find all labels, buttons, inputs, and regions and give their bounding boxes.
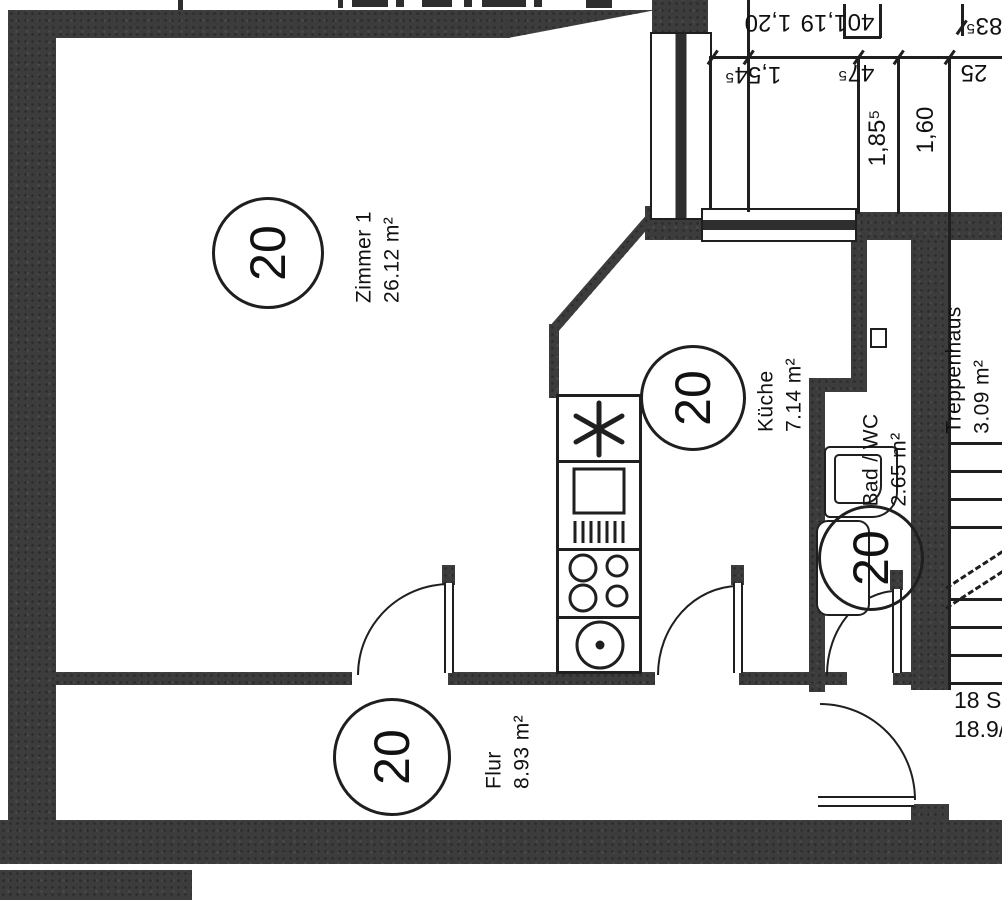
cutoff-dimension-text <box>178 0 183 10</box>
dimension-bracket <box>843 36 881 39</box>
door-leaf-zimmer <box>444 583 454 673</box>
room-number: 20 <box>363 729 421 785</box>
wall-diagonal <box>549 213 656 334</box>
dimension-label: 1,19 <box>801 8 848 36</box>
room-badge-flur: 20 <box>333 698 451 816</box>
cutoff-dimension-text <box>482 0 526 7</box>
room-badge-zimmer1: 20 <box>212 197 324 309</box>
room-label-flur: Flur 8.93 m² <box>480 715 535 789</box>
room-label-treppenhaus: Treppenhaus 3.09 m² <box>940 306 995 433</box>
stair-break-line <box>945 566 1002 610</box>
vent-box-icon <box>870 328 887 348</box>
room-name: Treppenhaus <box>940 306 968 433</box>
wall-top <box>8 10 510 38</box>
room-area: 2.65 m² <box>885 413 913 506</box>
cutoff-dimension-text <box>338 0 343 8</box>
extension-line <box>879 4 882 38</box>
wall-top-right-band <box>851 212 1002 240</box>
wall-bad-left-upper <box>851 238 867 390</box>
kitchen-unit <box>556 394 642 674</box>
door-jamb-zimmer <box>442 565 455 585</box>
floor-plan: 1,20 1,19 40 83⁵ 1,54⁵ 47⁵ 25 1,85⁵ 1,60… <box>0 0 1002 908</box>
cutoff-dimension-text <box>422 0 452 7</box>
dimension-label: 1,85⁵ <box>864 110 892 167</box>
wall-flur-seg1 <box>54 672 352 685</box>
stair-tread <box>950 442 1002 445</box>
wall-top-chamfer <box>508 10 656 38</box>
stair-note: 18 S 18.9/ <box>954 686 1002 744</box>
door-jamb-kueche <box>731 565 744 585</box>
room-area: 26.12 m² <box>378 211 406 303</box>
room-name: Flur <box>480 715 508 789</box>
freezer-star-icon <box>559 397 639 460</box>
oven-icon <box>559 463 639 548</box>
room-area: 8.93 m² <box>508 715 536 789</box>
room-name: Bad / WC <box>857 413 885 506</box>
wall-left <box>8 10 56 822</box>
dimension-label: 1,60 <box>912 107 940 154</box>
wall-bottom <box>0 820 1002 864</box>
window-glazing-icon <box>703 220 855 230</box>
wall-bottom-extra <box>0 870 192 900</box>
cutoff-dimension-text <box>586 0 612 8</box>
room-label-bad: Bad / WC 2.65 m² <box>857 413 912 506</box>
room-area: 3.09 m² <box>968 306 996 433</box>
door-arc-kueche <box>657 585 739 675</box>
room-number: 20 <box>664 370 722 426</box>
extension-line <box>897 56 900 214</box>
cutoff-dimension-text <box>534 0 542 7</box>
room-area: 7.14 m² <box>780 358 808 432</box>
dimension-label: 25 <box>961 58 988 86</box>
stair-tread <box>950 626 1002 629</box>
dimension-label: 40 <box>848 7 875 35</box>
stair-tread <box>950 682 1002 685</box>
room-label-zimmer1: Zimmer 1 26.12 m² <box>350 211 405 303</box>
wall-kitchen-side <box>549 324 559 398</box>
extension-line <box>961 4 964 36</box>
room-name: Küche <box>752 358 780 432</box>
cutoff-dimension-text <box>464 0 472 7</box>
room-number: 20 <box>842 530 900 586</box>
stair-break-line <box>945 546 1002 590</box>
extension-line <box>709 56 712 210</box>
stair-tread <box>950 598 1002 601</box>
window-glazing-icon <box>676 34 687 218</box>
room-number: 20 <box>239 225 297 281</box>
stair-tread <box>950 526 1002 529</box>
cooktop-icon <box>559 551 639 616</box>
stair-tread <box>950 498 1002 501</box>
door-leaf-entrance <box>818 796 914 807</box>
stair-note-line1: 18 S <box>954 686 1002 715</box>
room-badge-kueche: 20 <box>640 345 746 451</box>
dimension-label: 47⁵ <box>838 58 875 86</box>
window-kueche-vertical <box>650 32 712 220</box>
cutoff-dimension-text <box>352 0 388 7</box>
room-badge-bad: 20 <box>818 505 924 611</box>
dimension-label: 83⁵ <box>966 11 1002 39</box>
wall-window-stub-top <box>652 0 708 34</box>
extension-line <box>948 56 951 240</box>
window-kueche-horizontal <box>701 208 857 242</box>
stair-tread <box>950 654 1002 657</box>
dimension-label: 1,54⁵ <box>725 60 782 88</box>
stair-tread <box>950 470 1002 473</box>
door-leaf-kueche <box>733 583 743 673</box>
cutoff-dimension-text <box>396 0 404 7</box>
door-arc-zimmer <box>357 583 450 675</box>
door-arc-entrance <box>820 703 916 800</box>
sink-icon <box>559 619 639 671</box>
dimension-label: 1,20 <box>745 8 792 36</box>
room-name: Zimmer 1 <box>350 211 378 303</box>
stair-note-line2: 18.9/ <box>954 715 1002 744</box>
room-label-kueche: Küche 7.14 m² <box>752 358 807 432</box>
